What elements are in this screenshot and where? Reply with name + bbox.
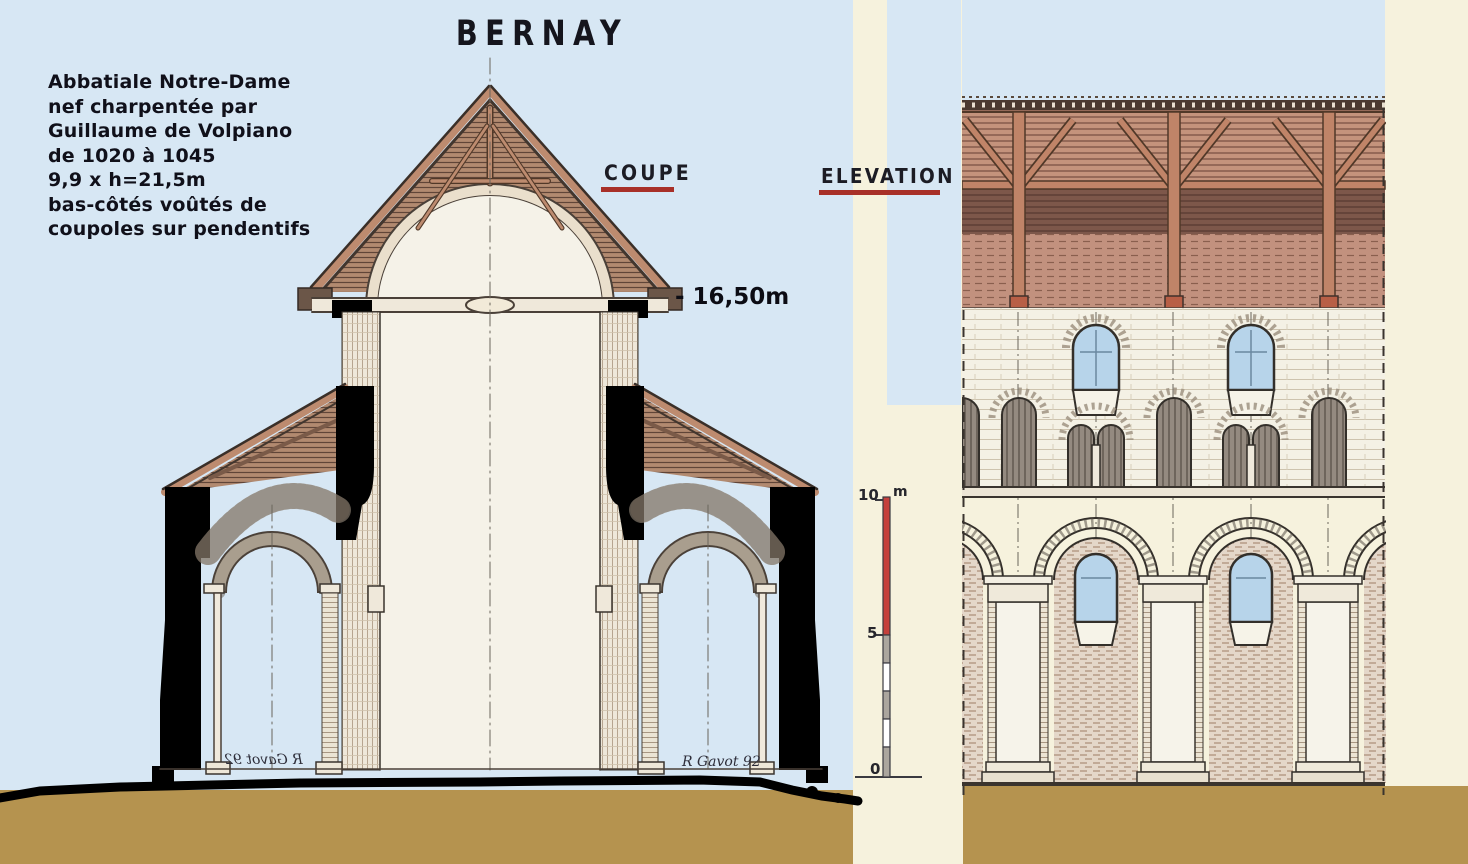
right-nave-capital <box>596 586 612 612</box>
info-line: bas-côtés voûtés de <box>48 193 310 218</box>
scale-label-unit: m <box>893 484 908 500</box>
elevation-roof-structure <box>962 97 1385 310</box>
arcade-piers <box>982 576 1364 783</box>
info-line: Abbatiale Notre-Dame <box>48 70 310 95</box>
right-aisle <box>606 384 828 783</box>
info-block: Abbatiale Notre-Dame nef charpentée par … <box>48 70 310 242</box>
scale-label-0: 0 <box>870 760 880 778</box>
pier-shaft <box>322 593 338 763</box>
elevation-label: ELEVATION <box>821 164 955 188</box>
info-line: de 1020 à 1045 <box>48 144 310 169</box>
string-course <box>962 487 1385 497</box>
left-aisle <box>152 384 374 783</box>
sky-patch <box>887 0 961 405</box>
info-line: 9,9 x h=21,5m <box>48 168 310 193</box>
elevation-drawing <box>879 97 1468 795</box>
scale-label-5: 5 <box>867 624 877 642</box>
elevation-ground-line <box>962 782 1385 786</box>
aisle-roof-planking <box>178 396 340 492</box>
elevation-underline <box>819 190 940 195</box>
info-line: coupoles sur pendentifs <box>48 217 310 242</box>
elevation-sky <box>962 0 1385 105</box>
outer-wall-poche <box>160 487 210 770</box>
coupe-label: COUPE <box>604 161 692 185</box>
left-nave-capital <box>368 586 384 612</box>
aisle-jamb <box>214 593 221 763</box>
coupe-underline <box>601 187 674 192</box>
info-line: nef charpentée par <box>48 95 310 120</box>
scanned-architecture-sheet: BERNAY Abbatiale Notre-Dame nef charpent… <box>0 0 1468 864</box>
page-title: BERNAY <box>456 14 628 54</box>
info-line: Guillaume de Volpiano <box>48 119 310 144</box>
height-annotation: - 16,50m <box>675 284 789 310</box>
signature-mirrored: R Gavot 92 <box>224 752 303 768</box>
scale-label-10: 10 <box>858 486 879 504</box>
signature: R Gavot 92 <box>682 754 761 770</box>
elevation-ground <box>963 786 1468 864</box>
scale-bar-upper-segment <box>883 497 890 635</box>
coupe-ground <box>0 790 853 864</box>
